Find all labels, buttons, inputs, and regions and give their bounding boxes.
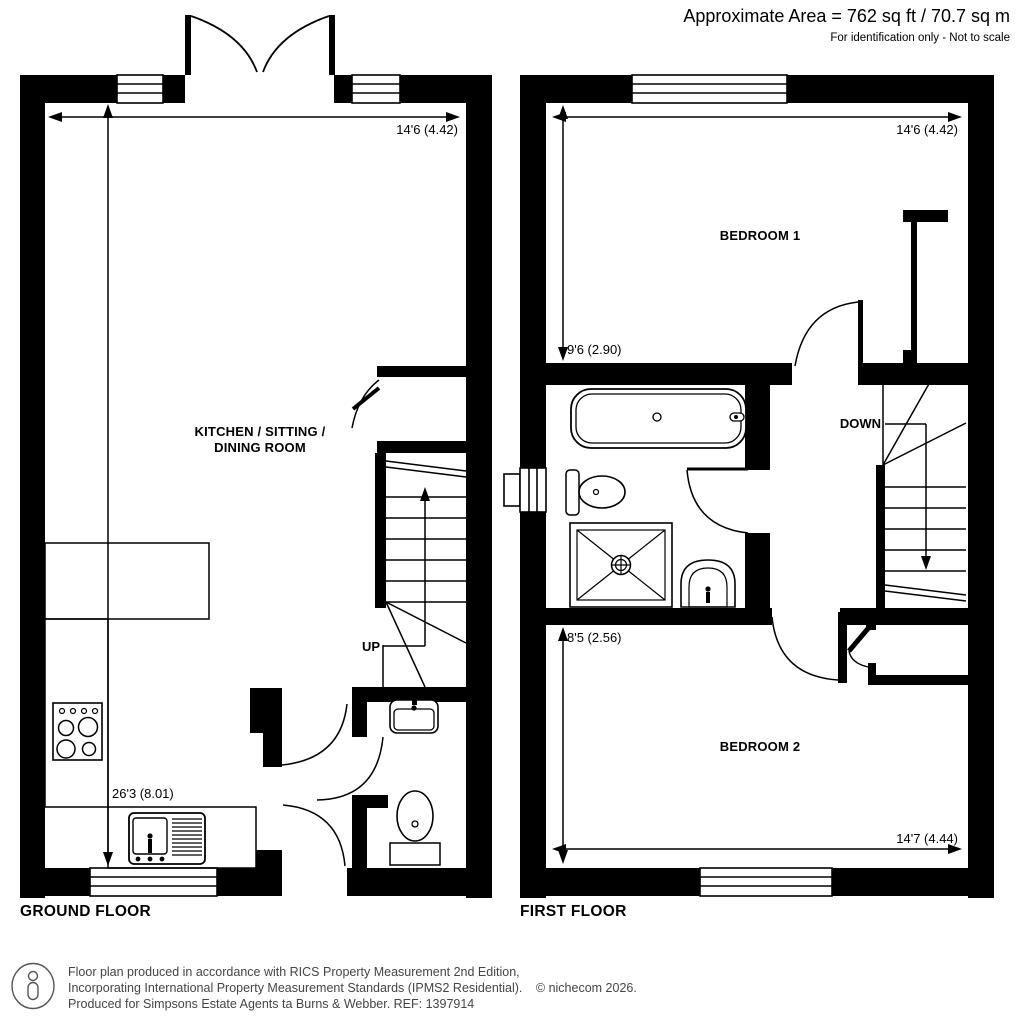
window	[504, 468, 546, 512]
french-doors	[185, 15, 335, 75]
window	[90, 868, 217, 896]
shower-tray	[570, 523, 672, 607]
first-floor-windows	[504, 75, 832, 896]
up-arrowhead	[420, 487, 430, 501]
ff-bed2-depth-dimension: 8'5 (2.56)	[567, 630, 622, 645]
window	[352, 75, 400, 103]
staircase-up	[383, 461, 466, 687]
dimension-arrow-length	[103, 104, 113, 866]
floor-plan-page: { "header": { "area": "Approximate Area …	[0, 0, 1024, 1018]
bedroom2-door	[772, 612, 847, 683]
kitchen-room-label-line1: KITCHEN / SITTING /	[160, 424, 360, 440]
bathroom-door	[687, 469, 748, 533]
footer-line1: Floor plan produced in accordance with R…	[68, 964, 520, 980]
ff-bed2-width-dimension: 14'7 (4.44)	[896, 831, 958, 846]
door-arc	[263, 16, 329, 72]
window	[632, 75, 787, 103]
ground-floor-walls	[20, 75, 492, 898]
footer-copyright: © nichecom 2026.	[536, 981, 637, 995]
cupboard-door	[352, 380, 379, 428]
wash-basin	[681, 560, 735, 607]
ground-floor-title: GROUND FLOOR	[20, 903, 151, 921]
bedroom1-door	[795, 300, 863, 366]
door-arc	[687, 470, 748, 533]
bedroom1-label: BEDROOM 1	[660, 228, 860, 244]
door-arc	[191, 16, 257, 72]
front-door-arc	[283, 805, 345, 866]
dimension-arrow-bed1-width	[552, 112, 962, 122]
kitchen-sink	[129, 813, 205, 864]
ff-bed1-width-dimension: 14'6 (4.42)	[896, 122, 958, 137]
bedroom2-label: BEDROOM 2	[660, 739, 860, 755]
bathtub	[571, 389, 746, 448]
window	[117, 75, 163, 103]
up-label: UP	[362, 639, 380, 654]
cooker-hob	[53, 703, 102, 760]
kitchen-door-arc	[282, 704, 347, 765]
ground-floor-plan	[20, 15, 492, 898]
footer-line2-text: Incorporating International Property Mea…	[68, 981, 522, 995]
first-floor-title: FIRST FLOOR	[520, 903, 627, 921]
kitchen-room-label: KITCHEN / SITTING / DINING ROOM	[160, 424, 360, 456]
ff-bed1-depth-dimension: 9'6 (2.90)	[567, 342, 622, 357]
kitchen-room-label-line2: DINING ROOM	[160, 440, 360, 456]
person-icon	[10, 962, 56, 1010]
dimension-arrow-bed2-depth	[558, 627, 568, 864]
disclaimer-text: For identification only - Not to scale	[830, 32, 1010, 44]
first-floor-plan	[504, 75, 994, 898]
down-arrowhead	[921, 556, 931, 570]
bathroom-toilet	[566, 470, 625, 515]
wc-basin	[390, 699, 438, 733]
dimension-arrow-bed1-depth	[558, 105, 568, 361]
door-arc	[772, 617, 838, 680]
approximate-area-text: Approximate Area = 762 sq ft / 70.7 sq m	[683, 6, 1010, 27]
gf-width-dimension: 14'6 (4.42)	[396, 122, 458, 137]
door-arc	[849, 651, 868, 667]
ground-floor-windows	[90, 75, 400, 896]
footer-line2: Incorporating International Property Mea…	[68, 980, 637, 996]
staircase-down	[883, 382, 966, 601]
gf-length-dimension: 26'3 (8.01)	[112, 786, 174, 801]
footer-line3: Produced for Simpsons Estate Agents ta B…	[68, 996, 474, 1012]
wc-door-arc	[317, 737, 383, 800]
door-arc	[795, 302, 858, 366]
wc-toilet	[390, 791, 440, 865]
bedroom2-closet-door	[849, 625, 871, 667]
floor-plan-canvas	[0, 0, 1024, 1018]
window	[700, 868, 832, 896]
down-label: DOWN	[840, 416, 881, 431]
